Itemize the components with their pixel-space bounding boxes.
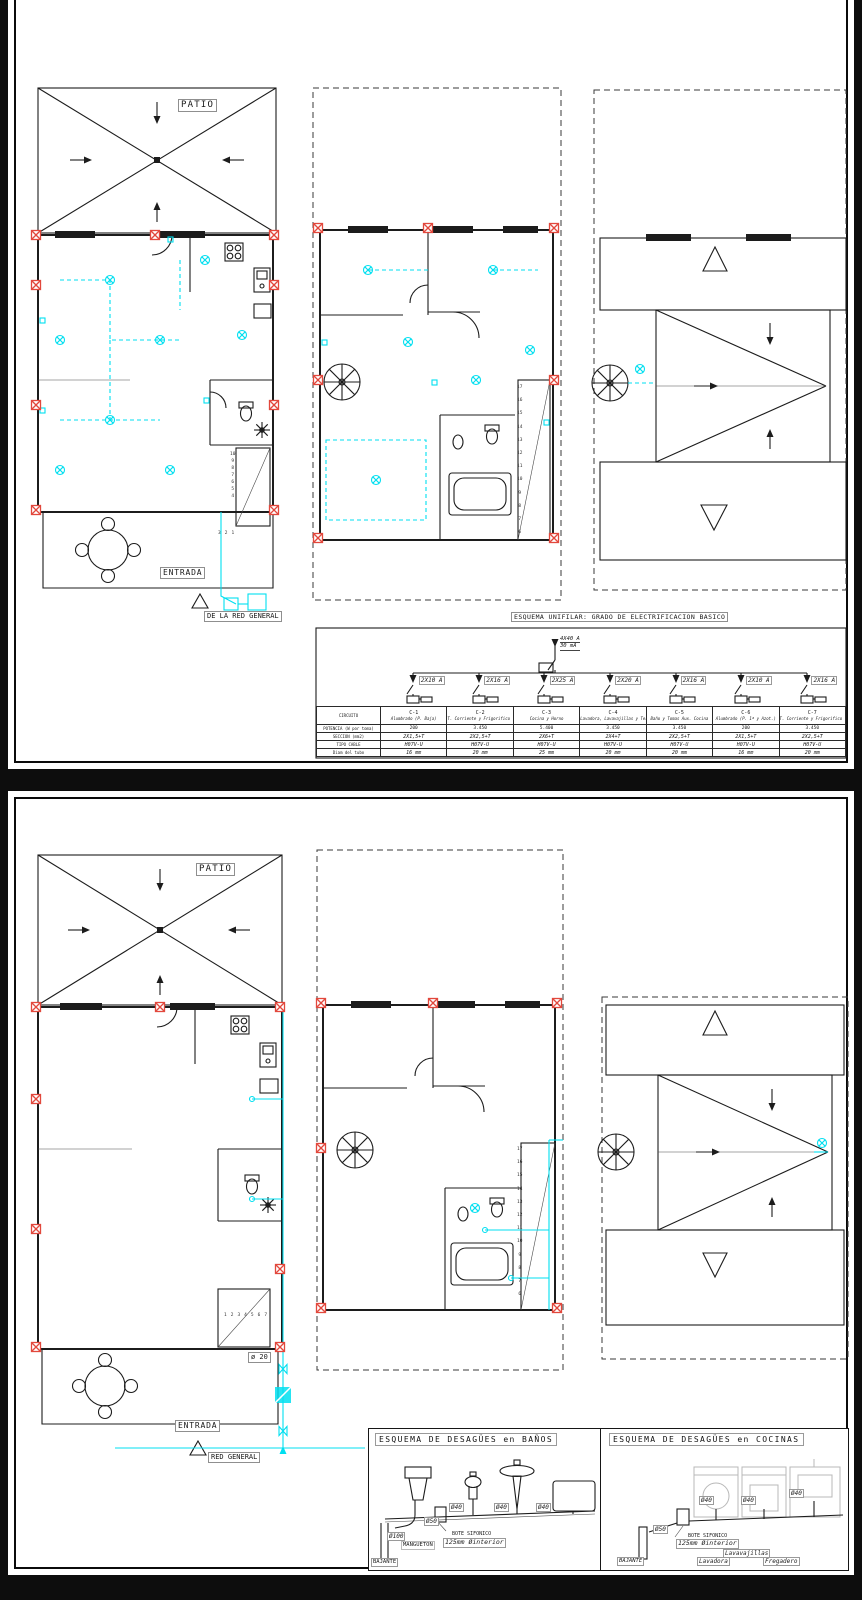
stair-number: 13 bbox=[517, 434, 522, 447]
electrical-wiring bbox=[40, 237, 266, 610]
stair-number: 12 bbox=[517, 447, 522, 460]
sheet-electricidad: PATIO ENTRADA DE LA RED GENERAL 10987654… bbox=[8, 0, 854, 769]
stair-numbers-ground: 1234567 bbox=[224, 1313, 267, 1318]
stair-number: 14 bbox=[517, 1183, 522, 1196]
stair-number: 13 bbox=[517, 1196, 522, 1209]
red-general-label: RED GENERAL bbox=[208, 1452, 260, 1463]
roof-plan bbox=[600, 995, 852, 1365]
circuit-name: T. Corriente y Frigorifico (P. Baja) bbox=[447, 716, 512, 721]
stair-number: 9 bbox=[518, 487, 521, 500]
banos-drainage-detail: ESQUEMA DE DESAGÜES en BAÑOS bbox=[368, 1428, 602, 1571]
stair-number: 4 bbox=[244, 1313, 247, 1318]
potencia-value: 200 bbox=[381, 725, 447, 733]
d100-label: Ø100 bbox=[387, 1532, 405, 1541]
mangueton-label: MANGUETON bbox=[401, 1541, 435, 1550]
bajante-label: BAJANTE bbox=[617, 1557, 644, 1566]
potencia-value: 3.450 bbox=[580, 725, 646, 733]
stair-number: 7 bbox=[518, 513, 521, 526]
tubo-value: 16 mm bbox=[381, 749, 447, 757]
stair-number: 17 bbox=[517, 1143, 522, 1156]
stair-number: 3 bbox=[218, 531, 221, 536]
cable-type: H07V-U bbox=[513, 741, 579, 749]
roof-plan bbox=[586, 85, 854, 603]
stair-number: 2 bbox=[231, 1313, 234, 1318]
d40-label: Ø40 bbox=[449, 1503, 464, 1512]
stair-number: 9 bbox=[231, 458, 234, 465]
main-breaker-rating: 4X40 A bbox=[560, 636, 580, 643]
stair-number: 8 bbox=[518, 1262, 521, 1275]
tubo-value: 20 mm bbox=[646, 749, 712, 757]
lavadora-label: Lavadora bbox=[697, 1557, 730, 1566]
stair-number: 10 bbox=[230, 451, 235, 458]
stair-number: 6 bbox=[231, 479, 234, 486]
tub-fixture bbox=[553, 1481, 595, 1514]
cocinas-drainage-detail: ESQUEMA DE DESAGÜES en COCINAS bbox=[600, 1428, 849, 1571]
bote-diameter-label: 125mm Øinterior bbox=[676, 1539, 739, 1549]
stair-number: 16 bbox=[517, 1156, 522, 1169]
tubo-value: 20 mm bbox=[447, 749, 513, 757]
potencia-value: 3.450 bbox=[779, 725, 845, 733]
seccion-value: 2X2,5+T bbox=[646, 733, 712, 741]
d50-label: Ø50 bbox=[424, 1517, 439, 1526]
pipe-diameter-label: ø 20 bbox=[248, 1352, 271, 1363]
column-markers bbox=[32, 1003, 285, 1352]
stair-numbers-first: 17161514131211109876 bbox=[517, 381, 522, 539]
roof-core bbox=[592, 247, 830, 530]
bote-diameter-label: 125mm Øinterior bbox=[443, 1538, 506, 1548]
row-header-potencia: POTENCIA (W por toma) bbox=[317, 725, 381, 733]
stair-number: 5 bbox=[251, 1313, 254, 1318]
column-markers bbox=[317, 999, 562, 1313]
tubo-value: 20 mm bbox=[779, 749, 845, 757]
unifilar-title: ESQUEMA UNIFILAR: GRADO DE ELECTRIFICACI… bbox=[511, 612, 728, 622]
seccion-value: 2X1,5+T bbox=[713, 733, 779, 741]
stair-number: 6 bbox=[518, 1288, 521, 1301]
stair-number: 2X10 A bbox=[746, 676, 772, 685]
circuit-name: Cocina y Horno bbox=[514, 716, 579, 721]
row-header-circuito: CIRCUITO bbox=[317, 707, 381, 725]
potencia-value: 3.450 bbox=[447, 725, 513, 733]
tubo-value: 20 mm bbox=[580, 749, 646, 757]
stair-number: 1 bbox=[231, 531, 234, 536]
stair-number: 9 bbox=[518, 1249, 521, 1262]
circuit-name: Lavadora, Lavavajillas y Termo Elect. bbox=[580, 716, 645, 721]
stair-number: 6 bbox=[258, 1313, 261, 1318]
red-general-label: DE LA RED GENERAL bbox=[204, 611, 282, 622]
circuit-name: T. Corriente y Frigorifico (P. 1ª y Azot… bbox=[780, 716, 845, 721]
stair-number: 2 bbox=[225, 531, 228, 536]
circuit-name: Alumbrado (P. 1ª y Azot.) bbox=[713, 716, 778, 721]
seccion-value: 2X2,5+T bbox=[447, 733, 513, 741]
patio-label: PATIO bbox=[196, 863, 235, 876]
d50-label: Ø50 bbox=[653, 1525, 668, 1534]
branch-labels: 2X10 A2X16 A2X25 A2X20 A2X16 A2X10 A2X16… bbox=[382, 676, 840, 685]
first-floor-plan-plumbing bbox=[315, 848, 567, 1374]
stair-number: 1 bbox=[224, 1313, 227, 1318]
stair-number: 2X25 A bbox=[550, 676, 576, 685]
roof-hatch bbox=[606, 1005, 844, 1325]
main-switch bbox=[539, 639, 559, 673]
plot-boundary bbox=[594, 90, 846, 590]
stair-number: 12 bbox=[517, 1209, 522, 1222]
cable-type: H07V-U bbox=[646, 741, 712, 749]
seccion-value: 2X4+T bbox=[580, 733, 646, 741]
bajante-label: BAJANTE bbox=[371, 1558, 398, 1567]
d40-label: Ø40 bbox=[536, 1503, 551, 1512]
stair-number: 10 bbox=[517, 473, 522, 486]
ground-floor-plan-electrical bbox=[20, 80, 310, 632]
main-breaker-label: 4X40 A 30 mA bbox=[560, 636, 580, 651]
stair-numbers-first: 17161514131211109876 bbox=[517, 1143, 522, 1301]
stair-number: 5 bbox=[231, 486, 234, 493]
stair-number: 2X16 A bbox=[681, 676, 707, 685]
plot-boundary bbox=[602, 997, 848, 1359]
plot-boundary bbox=[317, 850, 563, 1370]
seccion-value: 2X6+T bbox=[513, 733, 579, 741]
unifilar-diagram: ESQUEMA UNIFILAR: GRADO DE ELECTRIFICACI… bbox=[308, 610, 854, 768]
row-header-cable: TIPO CABLE bbox=[317, 741, 381, 749]
cable-type: H07V-U bbox=[713, 741, 779, 749]
bidet-fixture bbox=[465, 1472, 481, 1515]
plot-boundary bbox=[313, 88, 561, 600]
d40-label: Ø40 bbox=[699, 1496, 714, 1505]
circuit-name: Baño y Tomas Aux. Cocina bbox=[647, 716, 712, 721]
stair-number: 8 bbox=[231, 465, 234, 472]
stair-number: 7 bbox=[518, 1275, 521, 1288]
entrada-label: ENTRADA bbox=[175, 1420, 220, 1432]
stair-number: 15 bbox=[517, 1169, 522, 1182]
appliance-outlines bbox=[694, 1459, 840, 1517]
bote-sifonico-label: BOTE SIFONICO bbox=[451, 1531, 492, 1537]
stair-number: 17 bbox=[517, 381, 522, 394]
ground-walls bbox=[38, 231, 273, 526]
tubo-value: 25 mm bbox=[513, 749, 579, 757]
potencia-value: 5.400 bbox=[513, 725, 579, 733]
cable-type: H07V-U bbox=[779, 741, 845, 749]
stair-number: 7 bbox=[264, 1313, 267, 1318]
roof-hatch bbox=[600, 234, 846, 560]
fregadero-label: Fregadero bbox=[763, 1557, 800, 1566]
row-header-seccion: SECCION (mm2) bbox=[317, 733, 381, 741]
patio-label: PATIO bbox=[178, 99, 217, 112]
terrace bbox=[42, 1349, 278, 1455]
entrada-label: ENTRADA bbox=[160, 567, 205, 579]
stair-number: 2X16 A bbox=[811, 676, 837, 685]
circuit-name: Alumbrado (P. Baja) bbox=[381, 716, 446, 721]
potencia-value: 200 bbox=[713, 725, 779, 733]
stair-numbers-ground: 10987654 bbox=[230, 451, 235, 500]
stair-number: 2X10 A bbox=[419, 676, 445, 685]
ground-walls bbox=[38, 1003, 282, 1349]
stair-number: 10 bbox=[517, 1235, 522, 1248]
stair-number: 14 bbox=[517, 421, 522, 434]
cable-type: H07V-U bbox=[381, 741, 447, 749]
column-markers bbox=[32, 231, 279, 515]
stair-number: 15 bbox=[517, 407, 522, 420]
d40-label: Ø40 bbox=[789, 1489, 804, 1498]
roof-core bbox=[598, 1011, 832, 1277]
sheet-saneamiento: PATIO ENTRADA ø 20 RED GENERAL 1234567 1… bbox=[8, 791, 854, 1575]
seccion-value: 2X1,5+T bbox=[381, 733, 447, 741]
circuits-table: CIRCUITO C-1Alumbrado (P. Baja) C-2T. Co… bbox=[316, 706, 846, 757]
stair-number: 2X20 A bbox=[615, 676, 641, 685]
stair-number: 7 bbox=[231, 472, 234, 479]
d40-label: Ø40 bbox=[741, 1496, 756, 1505]
cable-type: H07V-U bbox=[447, 741, 513, 749]
stair-number: 6 bbox=[518, 526, 521, 539]
tubo-value: 16 mm bbox=[713, 749, 779, 757]
first-floor-plan-electrical bbox=[308, 80, 566, 610]
stair-number: 16 bbox=[517, 394, 522, 407]
potencia-value: 3.450 bbox=[646, 725, 712, 733]
d40-label: Ø40 bbox=[494, 1503, 509, 1512]
stair-number: 4 bbox=[231, 493, 234, 500]
row-header-tubo: Diam del tubo bbox=[317, 749, 381, 757]
stair-number: 2X16 A bbox=[484, 676, 510, 685]
stair-number: 8 bbox=[518, 500, 521, 513]
seccion-value: 2X2,5+T bbox=[779, 733, 845, 741]
stair-number: 11 bbox=[517, 1222, 522, 1235]
patio-area bbox=[38, 88, 276, 233]
stair-number: 11 bbox=[517, 460, 522, 473]
stair-numbers-ground-bottom: 321 bbox=[218, 531, 234, 536]
cable-type: H07V-U bbox=[580, 741, 646, 749]
main-differential-rating: 30 mA bbox=[560, 643, 580, 650]
stair-number: 3 bbox=[237, 1313, 240, 1318]
patio-area bbox=[38, 855, 282, 1005]
